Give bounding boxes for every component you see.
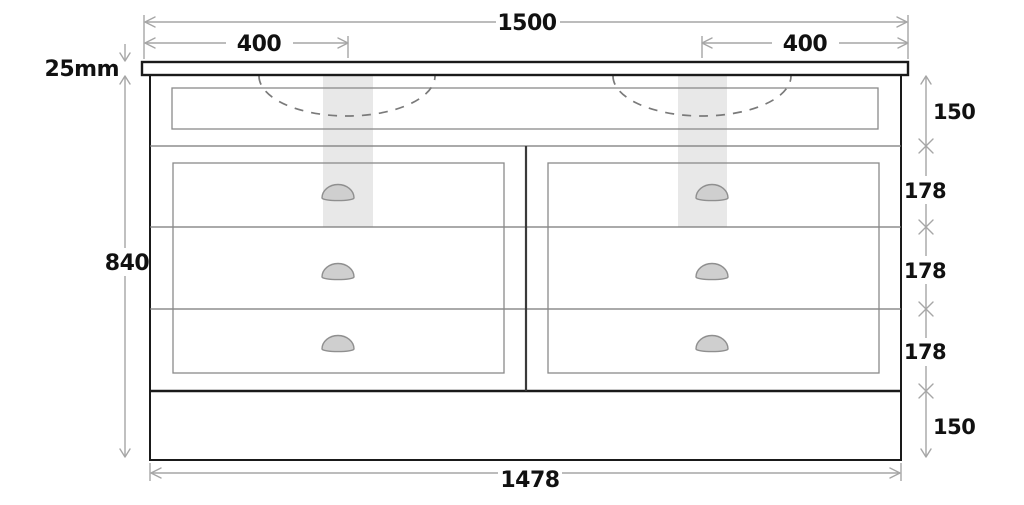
drawer-handle-right-2 — [696, 264, 728, 280]
dim-right-chain: 150 178 178 178 150 — [904, 76, 976, 457]
dim-worktop-thickness: 25mm — [45, 44, 130, 82]
dim-label-drawer2-height: 178 — [904, 259, 946, 283]
dim-label-body-height: 840 — [105, 251, 150, 276]
drawing-canvas: 1500 400 400 25mm 840 — [0, 0, 1024, 505]
right-plumbing-zone-band — [678, 76, 727, 227]
drawer-handle-left-3 — [322, 336, 354, 352]
dim-label-body-width: 1478 — [500, 468, 559, 493]
worktop — [142, 62, 908, 75]
vanity-dimension-drawing: 1500 400 400 25mm 840 — [0, 0, 1024, 505]
dim-label-right-basin-offset: 400 — [783, 32, 828, 57]
dim-right-basin-offset: 400 — [702, 32, 908, 58]
drawer-handle-left-2 — [322, 264, 354, 280]
dim-body-height: 840 — [105, 76, 150, 457]
dim-label-drawer1-height: 178 — [904, 179, 946, 203]
top-rail-recessed-panel — [172, 88, 878, 129]
left-plumbing-zone-band — [323, 76, 373, 227]
dim-label-drawer3-height: 178 — [904, 340, 946, 364]
dim-left-basin-offset: 400 — [145, 32, 348, 58]
dim-label-top-width: 1500 — [497, 11, 556, 36]
dim-label-plinth-height: 150 — [933, 415, 975, 439]
dim-label-worktop-thickness: 25mm — [45, 57, 119, 82]
dim-label-left-basin-offset: 400 — [237, 32, 282, 57]
dim-body-width: 1478 — [150, 463, 901, 493]
drawer-handle-right-3 — [696, 336, 728, 352]
dim-label-top-rail-height: 150 — [933, 100, 975, 124]
